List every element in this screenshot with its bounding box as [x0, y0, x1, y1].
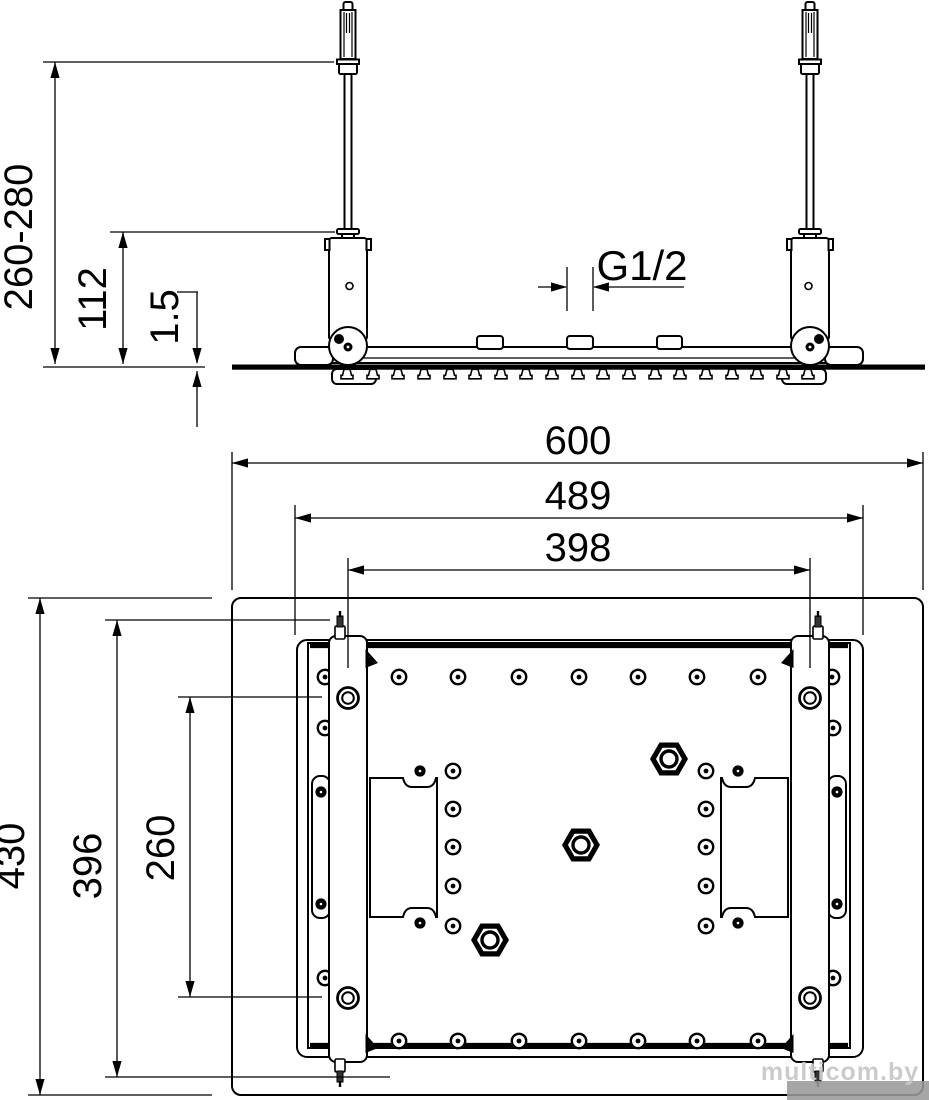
watermark-text: multicom.by [761, 1058, 919, 1086]
frame-bar [320, 336, 838, 363]
plan-view: 600 489 398 430 [0, 419, 923, 1095]
adapter-bracket-left [370, 765, 437, 928]
bar-tab-inlet [567, 336, 593, 349]
dim-bracket-height: 112 [71, 232, 335, 364]
dim-label-hole-spacing: 260 [139, 815, 183, 882]
bar-tab [657, 336, 682, 349]
shower-mount-drawing: 260-280 112 1.5 G1/2 [0, 0, 929, 1100]
dim-label-overall-depth: 430 [0, 823, 33, 890]
side-slot-right [828, 776, 846, 918]
elevation-view: 260-280 112 1.5 G1/2 [0, 2, 925, 427]
suspension-rod-left [337, 2, 359, 240]
dim-label-body-width: 489 [545, 474, 612, 518]
dim-plate-thickness: 1.5 [143, 289, 202, 427]
bar-tab [477, 336, 503, 349]
screw-row-top [318, 670, 839, 684]
dim-label-stud-span: 396 [66, 833, 110, 900]
adapter-bracket-right [721, 765, 788, 928]
mount-rail-left [329, 611, 367, 1087]
dim-label-plate-thickness: 1.5 [143, 289, 187, 345]
dim-label-thread-size: G1/2 [596, 242, 687, 289]
dim-thread-size: G1/2 [538, 242, 688, 311]
side-slot-left [312, 776, 330, 918]
dim-label-overall-width: 600 [545, 419, 612, 463]
dim-label-height-range: 260-280 [0, 164, 41, 311]
dim-label-bracket-height: 112 [71, 267, 115, 331]
suspension-rod-right [799, 2, 821, 240]
technical-drawing-page: 260-280 112 1.5 G1/2 [0, 0, 929, 1100]
dim-label-rail-spacing: 398 [545, 526, 612, 570]
nozzle-row [341, 369, 814, 379]
mount-rail-right [791, 611, 829, 1087]
